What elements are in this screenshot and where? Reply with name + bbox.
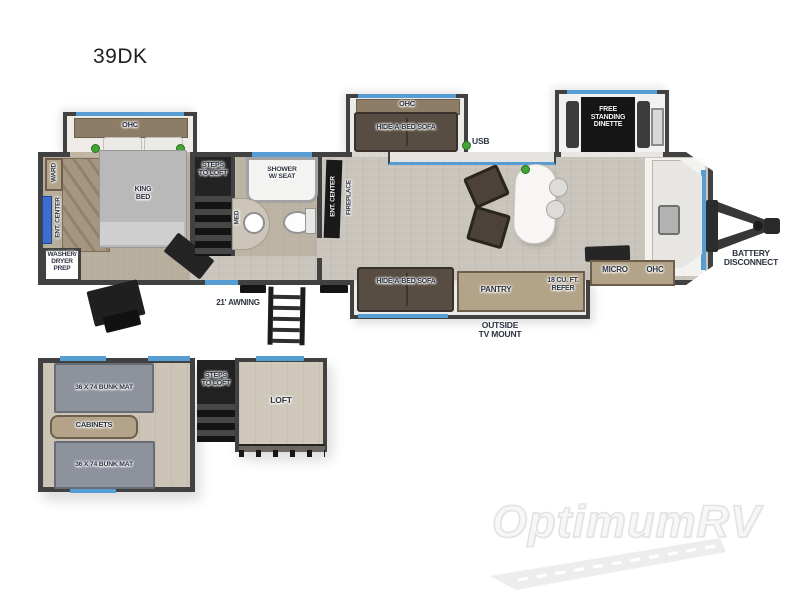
label-steps-lower: STEPS TO LOFT xyxy=(200,372,232,387)
label-usb: USB xyxy=(472,137,502,146)
label-refer: 18 CU. FT. REFER xyxy=(546,277,580,292)
awning-bracket xyxy=(240,285,266,293)
awning-bracket xyxy=(320,285,348,293)
wall-stub-entry xyxy=(317,258,322,280)
label-ohc-bedroom: OHC xyxy=(74,121,186,129)
dinette-chair xyxy=(637,101,650,148)
label-dinette: FREE STANDING DINETTE xyxy=(584,106,632,129)
label-loft: LOFT xyxy=(258,396,304,405)
toilet-tank xyxy=(305,208,316,234)
hitch-coupler xyxy=(764,218,780,234)
bedroom-tv xyxy=(42,196,52,244)
label-outside-tv: OUTSIDE TV MOUNT xyxy=(477,321,523,339)
loft-window xyxy=(256,356,304,361)
road-shape xyxy=(490,538,726,590)
entry-steps-rung xyxy=(272,295,300,299)
label-ward: WARD xyxy=(50,158,57,188)
label-ent-center-living: ENT. CENTER xyxy=(329,165,336,229)
entry-steps-rail xyxy=(299,287,305,345)
bottom-slide-window xyxy=(358,314,448,318)
loft-stairs-lower-treads xyxy=(197,404,235,442)
label-cabinets: CABINETS xyxy=(58,421,130,429)
entry-steps-rung xyxy=(272,317,300,321)
entry-steps-rung xyxy=(272,339,300,343)
label-washer-dryer: WASHER/ DRYER PREP xyxy=(44,251,80,272)
bath-sink xyxy=(243,212,265,234)
label-pantry: PANTRY xyxy=(466,286,526,295)
dinette-side-window xyxy=(651,108,664,146)
tongue-jack xyxy=(753,221,763,231)
label-micro: MICRO xyxy=(596,266,634,275)
island-stool xyxy=(549,178,568,197)
island-stool xyxy=(546,200,565,219)
floorplan-canvas: 39DK xyxy=(0,0,800,600)
label-bunk-mat-bottom: 36 X 74 BUNK MAT xyxy=(58,461,150,468)
hide-a-bed-sofa-top xyxy=(354,112,458,152)
label-med: MED xyxy=(233,204,240,232)
label-fireplace: FIREPLACE xyxy=(345,166,352,230)
king-slide-window xyxy=(76,112,184,116)
label-ohc-sofa: OHC xyxy=(356,100,458,108)
dinette-slide-window xyxy=(567,90,657,94)
galley-counter xyxy=(388,152,556,165)
hide-a-bed-sofa-bottom xyxy=(357,267,454,312)
green-dot-indicator xyxy=(462,141,471,150)
kitchen-sink xyxy=(658,205,680,235)
label-awning: 21' AWNING xyxy=(206,299,270,308)
loft-railing-posts xyxy=(239,450,325,457)
label-shower: SHOWER W/ SEAT xyxy=(264,166,300,181)
road-graphic xyxy=(488,534,738,592)
label-bunk-mat-top: 36 X 74 BUNK MAT xyxy=(58,384,150,391)
entry-steps-rung xyxy=(272,306,300,310)
label-hide-a-bed-bottom: HIDE-A-BED SOFA xyxy=(366,278,446,286)
sofa-slide-window xyxy=(358,94,456,98)
bunk-room-window xyxy=(60,356,106,361)
loft-stairs-treads xyxy=(195,196,231,256)
front-cap-bar xyxy=(706,200,718,252)
door-side-window xyxy=(205,280,238,285)
dinette-chair xyxy=(566,101,579,148)
label-battery-disconnect: BATTERY DISCONNECT xyxy=(708,249,794,267)
label-hide-a-bed-top: HIDE-A-BED SOFA xyxy=(361,124,451,132)
label-ohc-kitchen: OHC xyxy=(641,266,669,275)
label-steps-main: STEPS TO LOFT xyxy=(197,162,229,177)
label-king-bed: KING BED xyxy=(129,186,157,201)
entry-steps xyxy=(265,287,310,346)
label-ent-center-rear: ENT. CENTER xyxy=(54,191,61,245)
dinette-slide-opening xyxy=(561,152,663,157)
green-dot-indicator xyxy=(521,165,530,174)
bunk-room-window xyxy=(148,356,190,361)
entry-steps-rung xyxy=(272,328,300,332)
model-title: 39DK xyxy=(93,45,148,69)
